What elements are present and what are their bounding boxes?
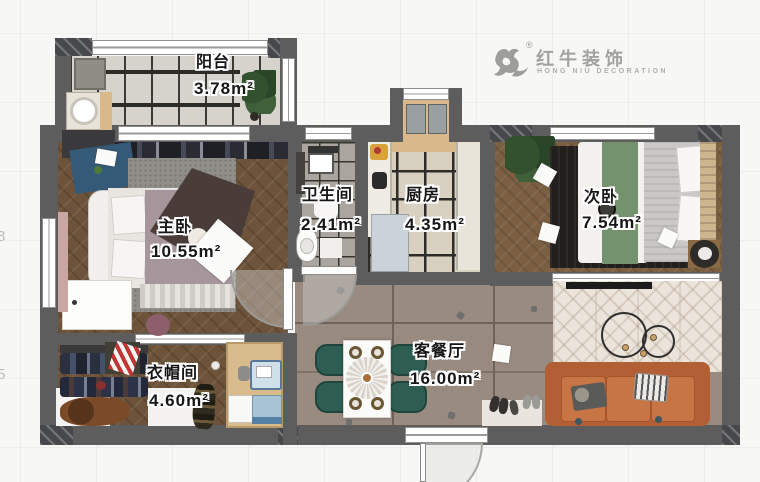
kitchen-sink-basin [428,104,447,134]
cloakroom-area: 4.60m² [149,391,209,411]
fur-coat [60,397,130,426]
floor-marker [346,419,352,425]
sofa-pillow-striped [633,373,669,403]
sofa-button [655,416,662,423]
table-centerpiece [361,372,373,384]
bottom-wall [40,425,740,445]
corner-column [722,425,740,445]
bathroom-door-leaf [301,266,357,275]
small-stool [211,361,220,370]
entry-door-leaf [420,443,426,482]
toilet-lid [300,238,314,254]
balcony-wall-art [74,58,106,90]
kettle [372,172,387,189]
ruler-mark-8: 8 [0,228,5,245]
fan-bulb [640,350,647,357]
master-wardrobe [115,142,288,159]
laptop [256,366,272,378]
washing-machine-door [70,97,98,125]
master-bedroom-area: 10.55m² [151,242,221,262]
storage-bin-edge [252,417,282,424]
fridge [371,214,409,272]
bathroom-sink [308,153,334,174]
shoe [531,395,540,410]
cloakroom-label: 衣帽间 [147,359,198,383]
mid-window [305,127,352,140]
tv-bar [566,282,652,289]
bathroom-area: 2.41m² [301,215,361,235]
placemat [371,397,384,410]
pouf [146,314,170,336]
corner-column [40,425,73,445]
master-side-window [42,218,56,308]
sofa-button [575,418,582,425]
second-bedroom-area: 7.54m² [582,213,642,233]
kitchen-sink-basin [406,104,426,134]
balcony-drying-rack [100,103,240,107]
floor-marker [531,306,537,312]
master-balcony-door [118,126,250,141]
desk-chair [238,366,250,381]
master-bedroom-label: 主卧 [158,213,192,237]
master-door-leaf [283,268,293,330]
brand-subtitle: HONG NIU DECORATION [537,68,668,75]
bathroom-shelf [308,146,338,153]
cat [698,247,712,260]
corner-column [55,38,92,56]
entry-threshold [405,427,488,443]
balcony-label: 阳台 [196,48,230,72]
desk-item [72,300,77,305]
ruler-mark-5: 5 [0,366,5,383]
cloakroom-right-wall [283,333,297,445]
placemat [371,346,384,359]
balcony-cabinet [100,92,112,130]
bathroom-mat [320,238,342,258]
kitchen-counter-right [456,142,480,270]
living-dining-area: 16.00m² [410,369,480,389]
bathroom-kitchen-wall [355,142,368,285]
balcony-top-window [92,40,268,55]
kitchen-bottom-wall [357,272,490,285]
bathroom-label: 卫生间 [302,181,353,205]
second-bedroom-window [550,127,655,140]
fan-bulb [622,344,629,351]
kitchen-bay-window [403,88,449,100]
second-bedroom-label: 次卧 [584,183,618,207]
right-wall [722,125,740,445]
tissue-paper [95,148,117,166]
bed-end-bench [140,284,235,308]
entry-door-swing [423,443,483,482]
living-dining-label: 客餐厅 [414,337,465,361]
pillow [111,195,148,235]
balcony-side-window [282,58,295,122]
floorplan-canvas: 8 5 ® 红牛装饰 HONG NIU DECORATION [0,0,760,482]
stove-burner [374,147,381,154]
placemat [349,397,362,410]
master-desk [62,280,132,330]
tissue-paper [492,344,511,363]
kitchen-bedroom2-wall [480,142,495,285]
curtain [58,212,68,312]
brand-watermark: ® 红牛装饰 HONG NIU DECORATION [490,42,670,84]
plant-pot [250,112,259,121]
kitchen-label: 厨房 [406,181,440,205]
pillow [111,239,148,279]
registered-mark: ® [526,40,533,50]
kitchen-bay-left-wall [390,88,403,148]
fan-bulb [650,334,657,341]
kitchen-counter-top [392,142,456,152]
balcony-area: 3.78m² [194,79,254,99]
kitchen-area: 4.35m² [405,215,465,235]
small-plant [94,166,102,174]
sofa-pillow-dark [570,382,607,411]
placemat [349,346,362,359]
kitchen-bay-right-wall [449,88,462,148]
bull-logo-icon [492,46,530,80]
drawer-unit [228,395,254,423]
red-garment [96,381,106,390]
